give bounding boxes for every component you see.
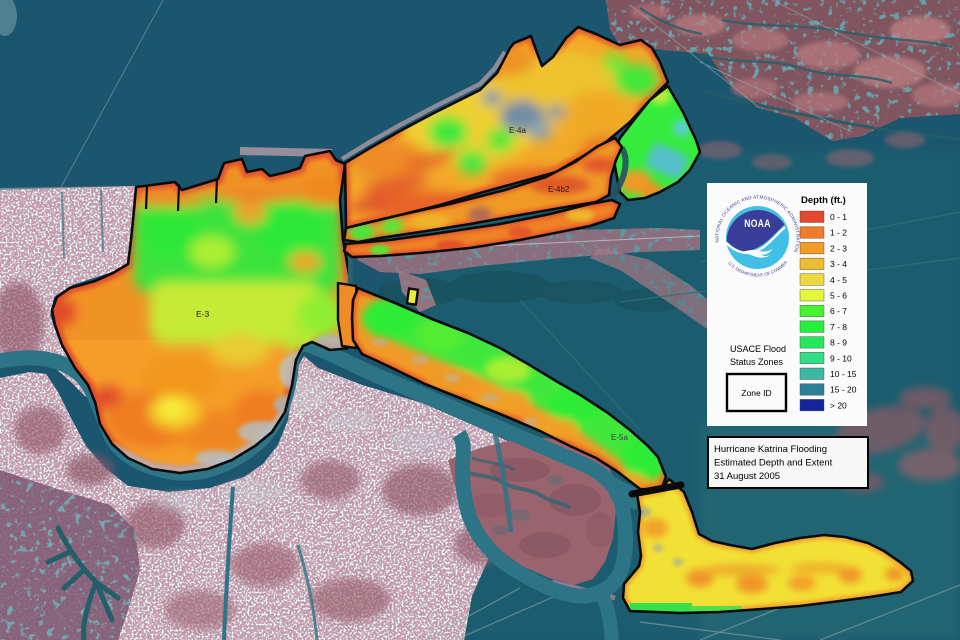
svg-text:10 - 15: 10 - 15 [830,369,857,379]
svg-text:E-3: E-3 [196,309,210,319]
svg-text:Status Zones: Status Zones [730,357,784,367]
svg-text:Estimated Depth and Extent: Estimated Depth and Extent [714,458,833,469]
svg-text:E-4a: E-4a [509,126,526,135]
svg-text:NOAA: NOAA [744,218,771,230]
svg-text:USACE Flood: USACE Flood [730,344,786,354]
svg-text:15 - 20: 15 - 20 [830,385,857,395]
svg-text:0 - 1: 0 - 1 [830,212,847,222]
svg-text:5 - 6: 5 - 6 [830,291,847,301]
svg-text:2 - 3: 2 - 3 [830,243,847,253]
svg-text:Hurricane Katrina Flooding: Hurricane Katrina Flooding [714,444,827,455]
svg-text:Zone ID: Zone ID [741,388,771,398]
svg-text:8 - 9: 8 - 9 [830,338,847,348]
svg-text:9 - 10: 9 - 10 [830,353,852,363]
svg-text:3 - 4: 3 - 4 [830,259,847,269]
svg-text:6 - 7: 6 - 7 [830,306,847,316]
svg-text:1 - 2: 1 - 2 [830,228,847,238]
svg-text:7 - 8: 7 - 8 [830,322,847,332]
svg-text:E-5a: E-5a [611,433,628,442]
svg-text:E-4b2: E-4b2 [548,185,570,194]
svg-text:> 20: > 20 [830,400,847,410]
svg-text:Depth (ft.): Depth (ft.) [801,195,846,206]
svg-text:31 August 2005: 31 August 2005 [714,471,780,482]
svg-text:4 - 5: 4 - 5 [830,275,847,285]
